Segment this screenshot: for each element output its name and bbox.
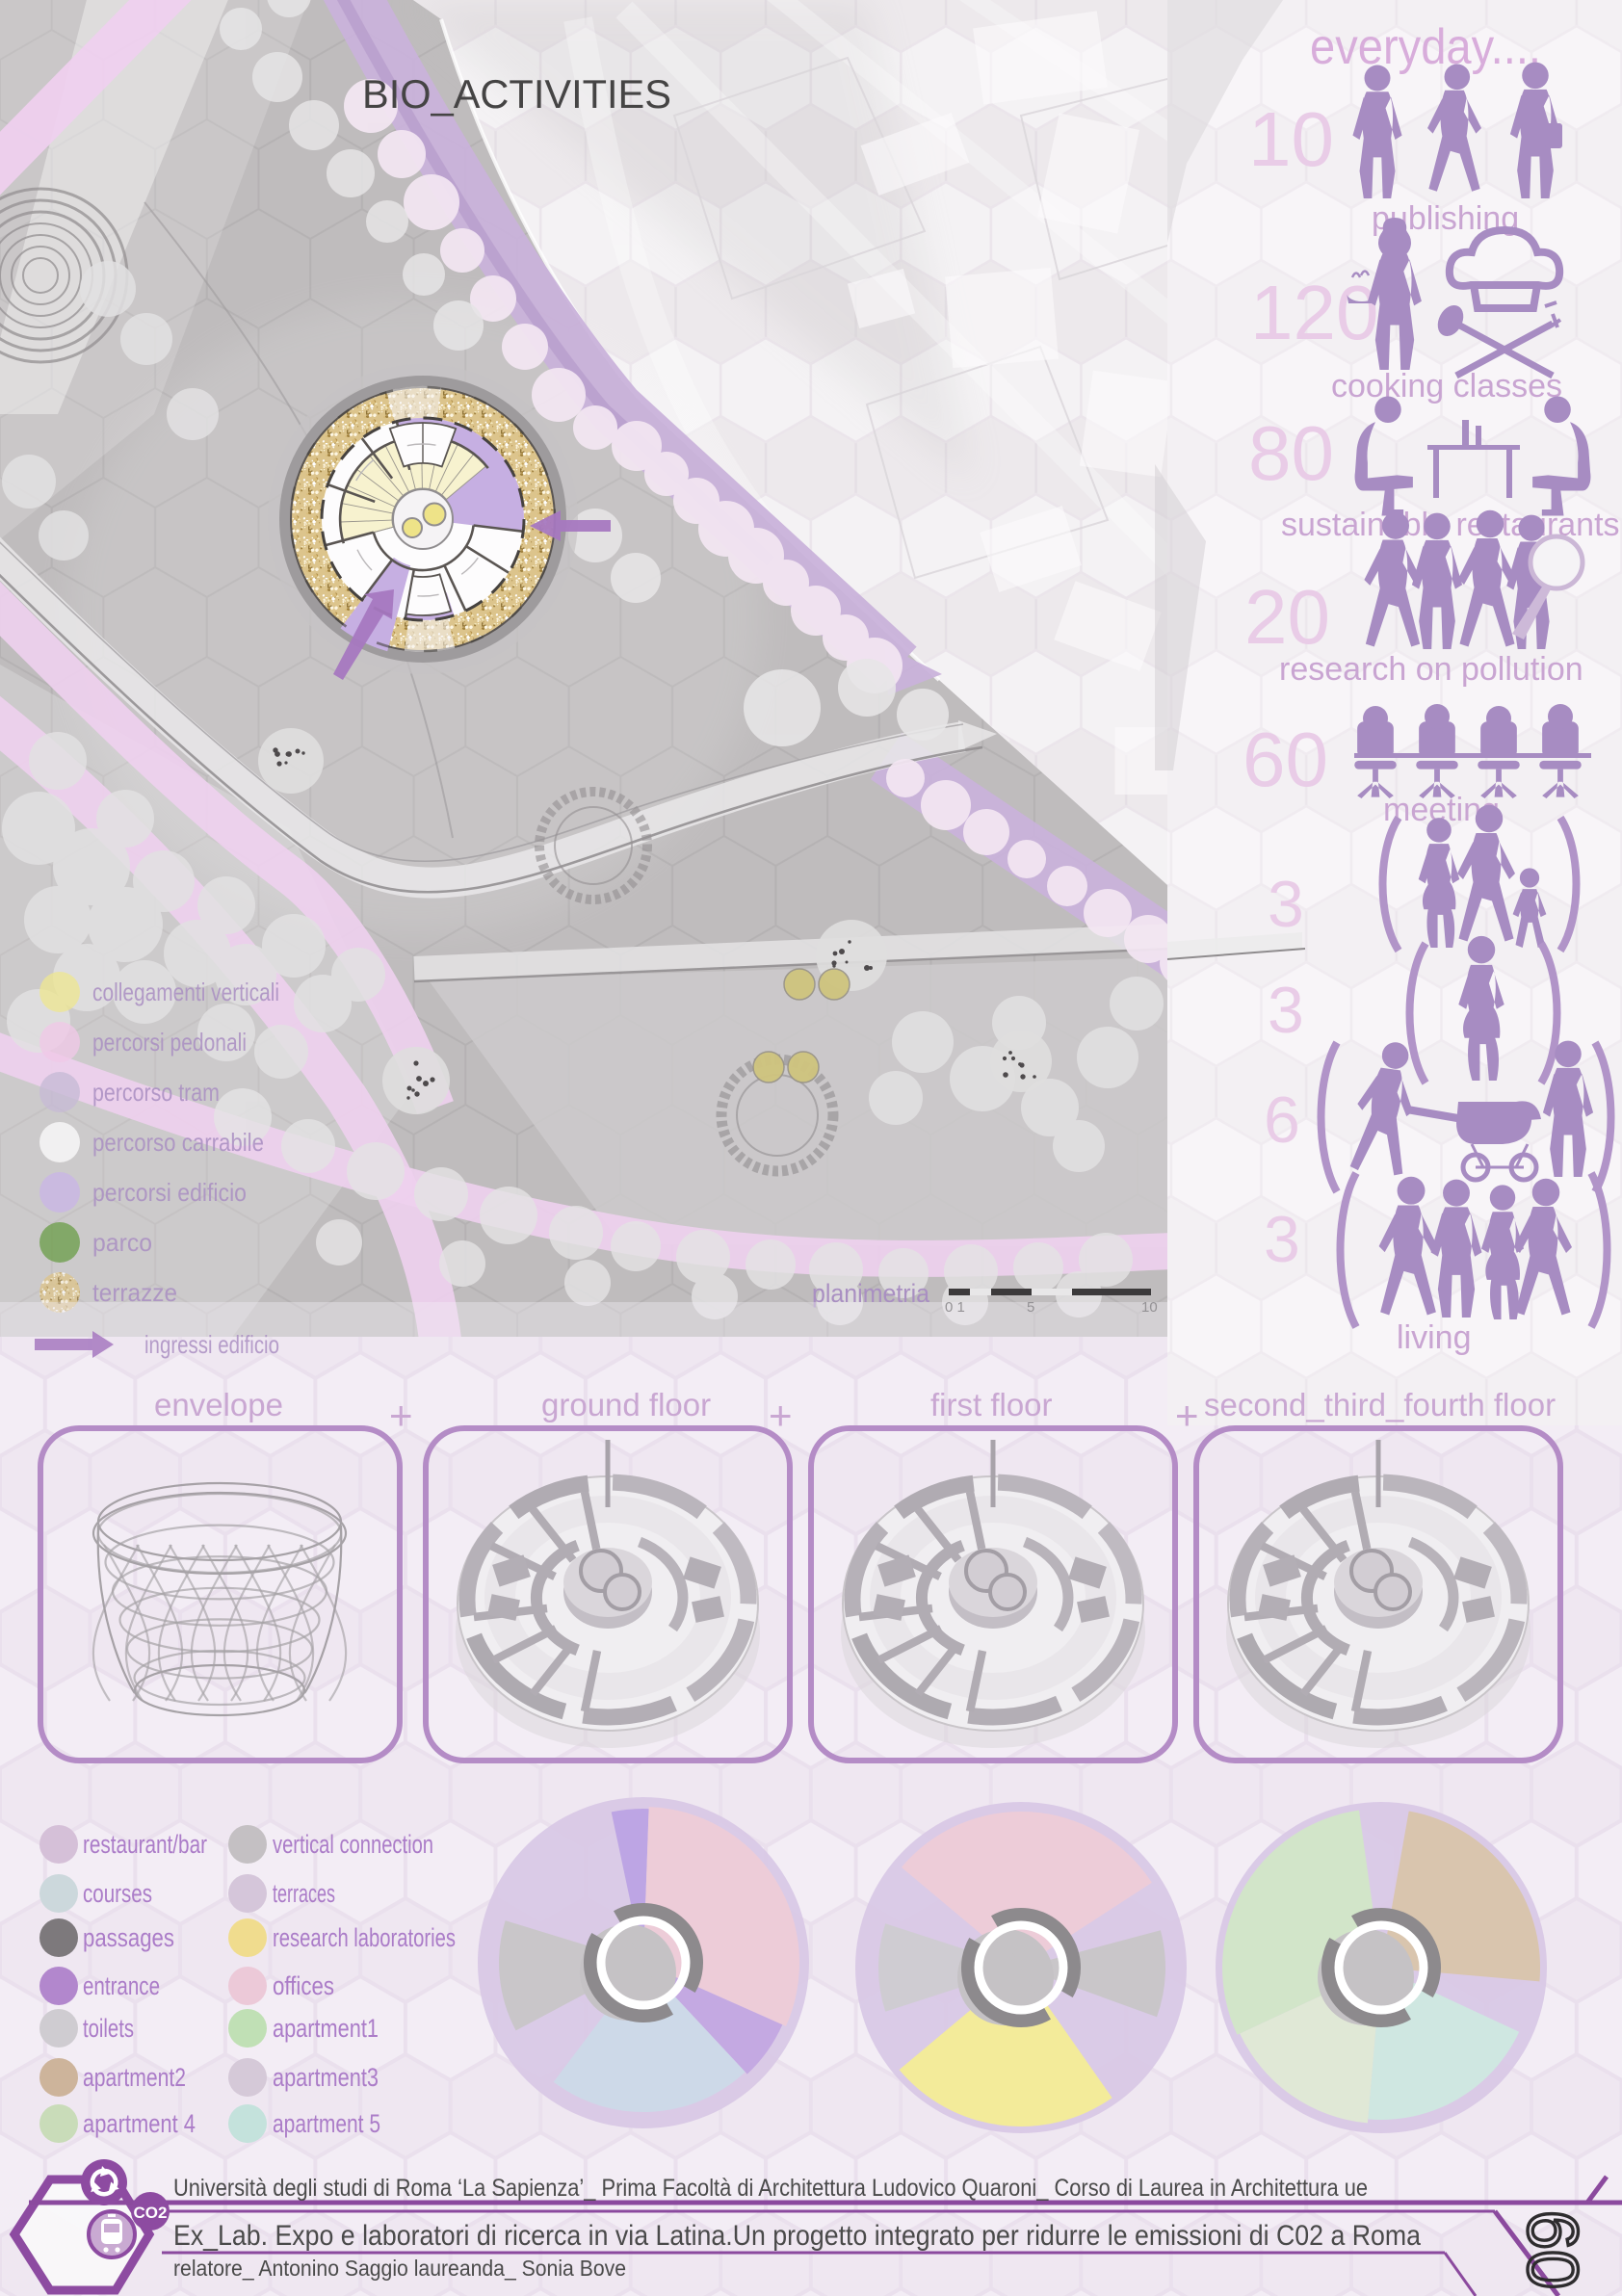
svg-text:toilets: toilets xyxy=(83,2014,134,2043)
svg-text:percorso tram: percorso tram xyxy=(92,1078,220,1107)
svg-text:+: + xyxy=(389,1393,413,1438)
svg-text:entrance: entrance xyxy=(83,1971,160,2000)
svg-text:courses: courses xyxy=(83,1879,152,1908)
svg-text:80: 80 xyxy=(1248,410,1334,496)
svg-text:Università degli studi di Roma: Università degli studi di Roma ‘La Sapie… xyxy=(173,2175,1368,2202)
svg-text:everyday....: everyday.... xyxy=(1310,19,1541,75)
svg-text:120: 120 xyxy=(1250,270,1378,355)
svg-text:offices: offices xyxy=(273,1971,334,2000)
svg-text:envelope: envelope xyxy=(154,1387,283,1422)
svg-text:60: 60 xyxy=(1243,717,1328,802)
svg-text:second_third_fourth floor: second_third_fourth floor xyxy=(1204,1387,1556,1422)
svg-text:passages: passages xyxy=(83,1923,174,1952)
svg-text:apartment3: apartment3 xyxy=(273,2063,379,2092)
svg-text:ingressi edificio: ingressi edificio xyxy=(144,1330,279,1359)
svg-text:6: 6 xyxy=(1264,1083,1300,1157)
svg-text:CO2: CO2 xyxy=(134,2204,168,2222)
svg-text:parco: parco xyxy=(92,1228,152,1257)
svg-text:20: 20 xyxy=(1244,574,1330,660)
svg-text:restaurant/bar: restaurant/bar xyxy=(83,1830,207,1859)
svg-text:3: 3 xyxy=(1264,1203,1300,1276)
svg-text:3: 3 xyxy=(1268,868,1304,941)
svg-text:research laboratories: research laboratories xyxy=(273,1923,456,1952)
svg-text:percorso carrabile: percorso carrabile xyxy=(92,1128,264,1157)
svg-text:percorsi edificio: percorsi edificio xyxy=(92,1178,247,1207)
svg-text:vertical connection: vertical connection xyxy=(273,1830,433,1859)
svg-text:first floor: first floor xyxy=(930,1387,1053,1422)
svg-text:ground floor: ground floor xyxy=(541,1387,711,1422)
svg-text:terraces: terraces xyxy=(273,1879,335,1908)
svg-text:10: 10 xyxy=(1248,96,1334,182)
svg-text:apartment 5: apartment 5 xyxy=(273,2109,380,2138)
svg-text:apartment 4: apartment 4 xyxy=(83,2109,196,2138)
svg-text:cooking classes: cooking classes xyxy=(1331,368,1562,404)
svg-text:research on pollution: research on pollution xyxy=(1279,651,1583,688)
svg-text:percorsi pedonali: percorsi pedonali xyxy=(92,1028,247,1057)
svg-text:3: 3 xyxy=(1268,974,1304,1047)
svg-text:collegamenti verticali: collegamenti verticali xyxy=(92,978,279,1006)
svg-text:60: 60 xyxy=(1512,2210,1592,2289)
svg-text:apartment2: apartment2 xyxy=(83,2063,186,2092)
svg-text:+: + xyxy=(1175,1393,1199,1438)
svg-text:Ex_Lab. Expo e laboratori di r: Ex_Lab. Expo e laboratori di ricerca in … xyxy=(173,2220,1422,2252)
svg-text:apartment1: apartment1 xyxy=(273,2014,379,2043)
svg-text:living: living xyxy=(1397,1319,1471,1356)
svg-text:relatore_ Antonino Saggio lau: relatore_ Antonino Saggio laureanda_ Son… xyxy=(173,2256,626,2281)
svg-text:BIO_ACTIVITIES: BIO_ACTIVITIES xyxy=(362,71,671,117)
